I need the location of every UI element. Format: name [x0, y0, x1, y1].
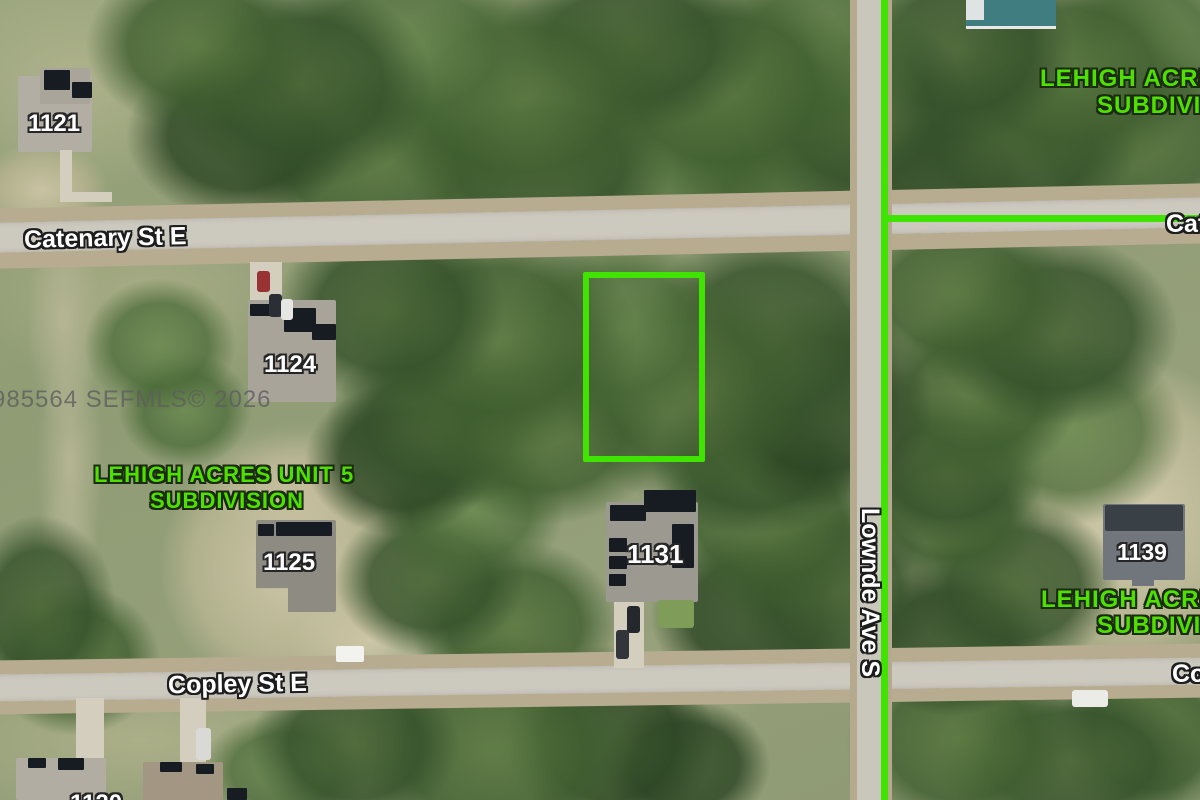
- roof-dark-section: [58, 758, 84, 770]
- driveway: [76, 698, 104, 760]
- vehicle-dark: [616, 630, 629, 659]
- boundary-line-horizontal: [884, 215, 1200, 222]
- vehicle-white: [281, 299, 293, 320]
- aerial-map: Catenary St E Catenary St E Copley St E …: [0, 0, 1200, 800]
- roof-dark-section: [44, 70, 70, 90]
- lawn-patch: [658, 600, 694, 628]
- solar-panels: [609, 574, 626, 586]
- mls-watermark: 985564 SEFMLS© 2026: [0, 386, 272, 414]
- lot-number-1139: 1139: [1117, 539, 1167, 566]
- subdivision-label-bottom-right-line2: SUBDIVISION: [1097, 612, 1200, 640]
- lot-number-1121: 1121: [28, 110, 80, 138]
- vehicle-red: [257, 271, 270, 292]
- street-label-lownde: Lownde Ave S: [855, 508, 884, 677]
- roof-entry-bump: [1132, 578, 1154, 586]
- roof-dark-section: [160, 762, 182, 772]
- roof-dark-section: [1105, 505, 1183, 531]
- vehicle-white: [1072, 690, 1108, 707]
- lot-number-1124: 1124: [264, 351, 316, 379]
- roof-dark-section: [276, 522, 332, 536]
- walkway: [60, 150, 72, 198]
- roof-white-section: [966, 0, 984, 20]
- roof-dark-section: [258, 524, 274, 536]
- solar-panels: [609, 538, 627, 552]
- roof-dark-section: [28, 758, 46, 768]
- roof-dark-section: [312, 324, 336, 340]
- roof-dark-section: [196, 764, 214, 774]
- subject-lot-outline: [583, 272, 705, 462]
- vehicle-dark: [627, 606, 640, 633]
- street-label-copley-west: Copley St E: [168, 669, 307, 700]
- shed-roof: [227, 788, 247, 800]
- road-asphalt: [857, 0, 883, 800]
- lot-number-1125: 1125: [263, 549, 315, 577]
- white-shed: [336, 646, 364, 662]
- street-label-catenary-east: Catenary St E: [1166, 210, 1200, 239]
- walkway: [60, 192, 112, 202]
- vehicle-white: [196, 728, 211, 760]
- roof-dark-section: [610, 505, 646, 521]
- lot-number-partial-bottom-left: 1120: [70, 790, 122, 800]
- solar-panels: [609, 556, 627, 569]
- roof-dark-section: [644, 490, 696, 512]
- roof-dark-section: [72, 82, 92, 98]
- lot-number-1131: 1131: [627, 539, 683, 570]
- street-label-copley-east: Copley St E: [1172, 660, 1200, 689]
- street-label-catenary-west: Catenary St E: [24, 222, 187, 255]
- subdivision-label-center-line1: LEHIGH ACRES UNIT 5: [94, 462, 354, 488]
- subdivision-label-bottom-right-line1: LEHIGH ACRES: [1041, 586, 1200, 614]
- boundary-line-vertical: [881, 0, 888, 800]
- subdivision-label-center-line2: SUBDIVISION: [150, 488, 304, 514]
- subdivision-label-top-right-line2: SUBDIVISION: [1097, 92, 1200, 120]
- subdivision-label-top-right-line1: LEHIGH ACRES: [1040, 65, 1200, 93]
